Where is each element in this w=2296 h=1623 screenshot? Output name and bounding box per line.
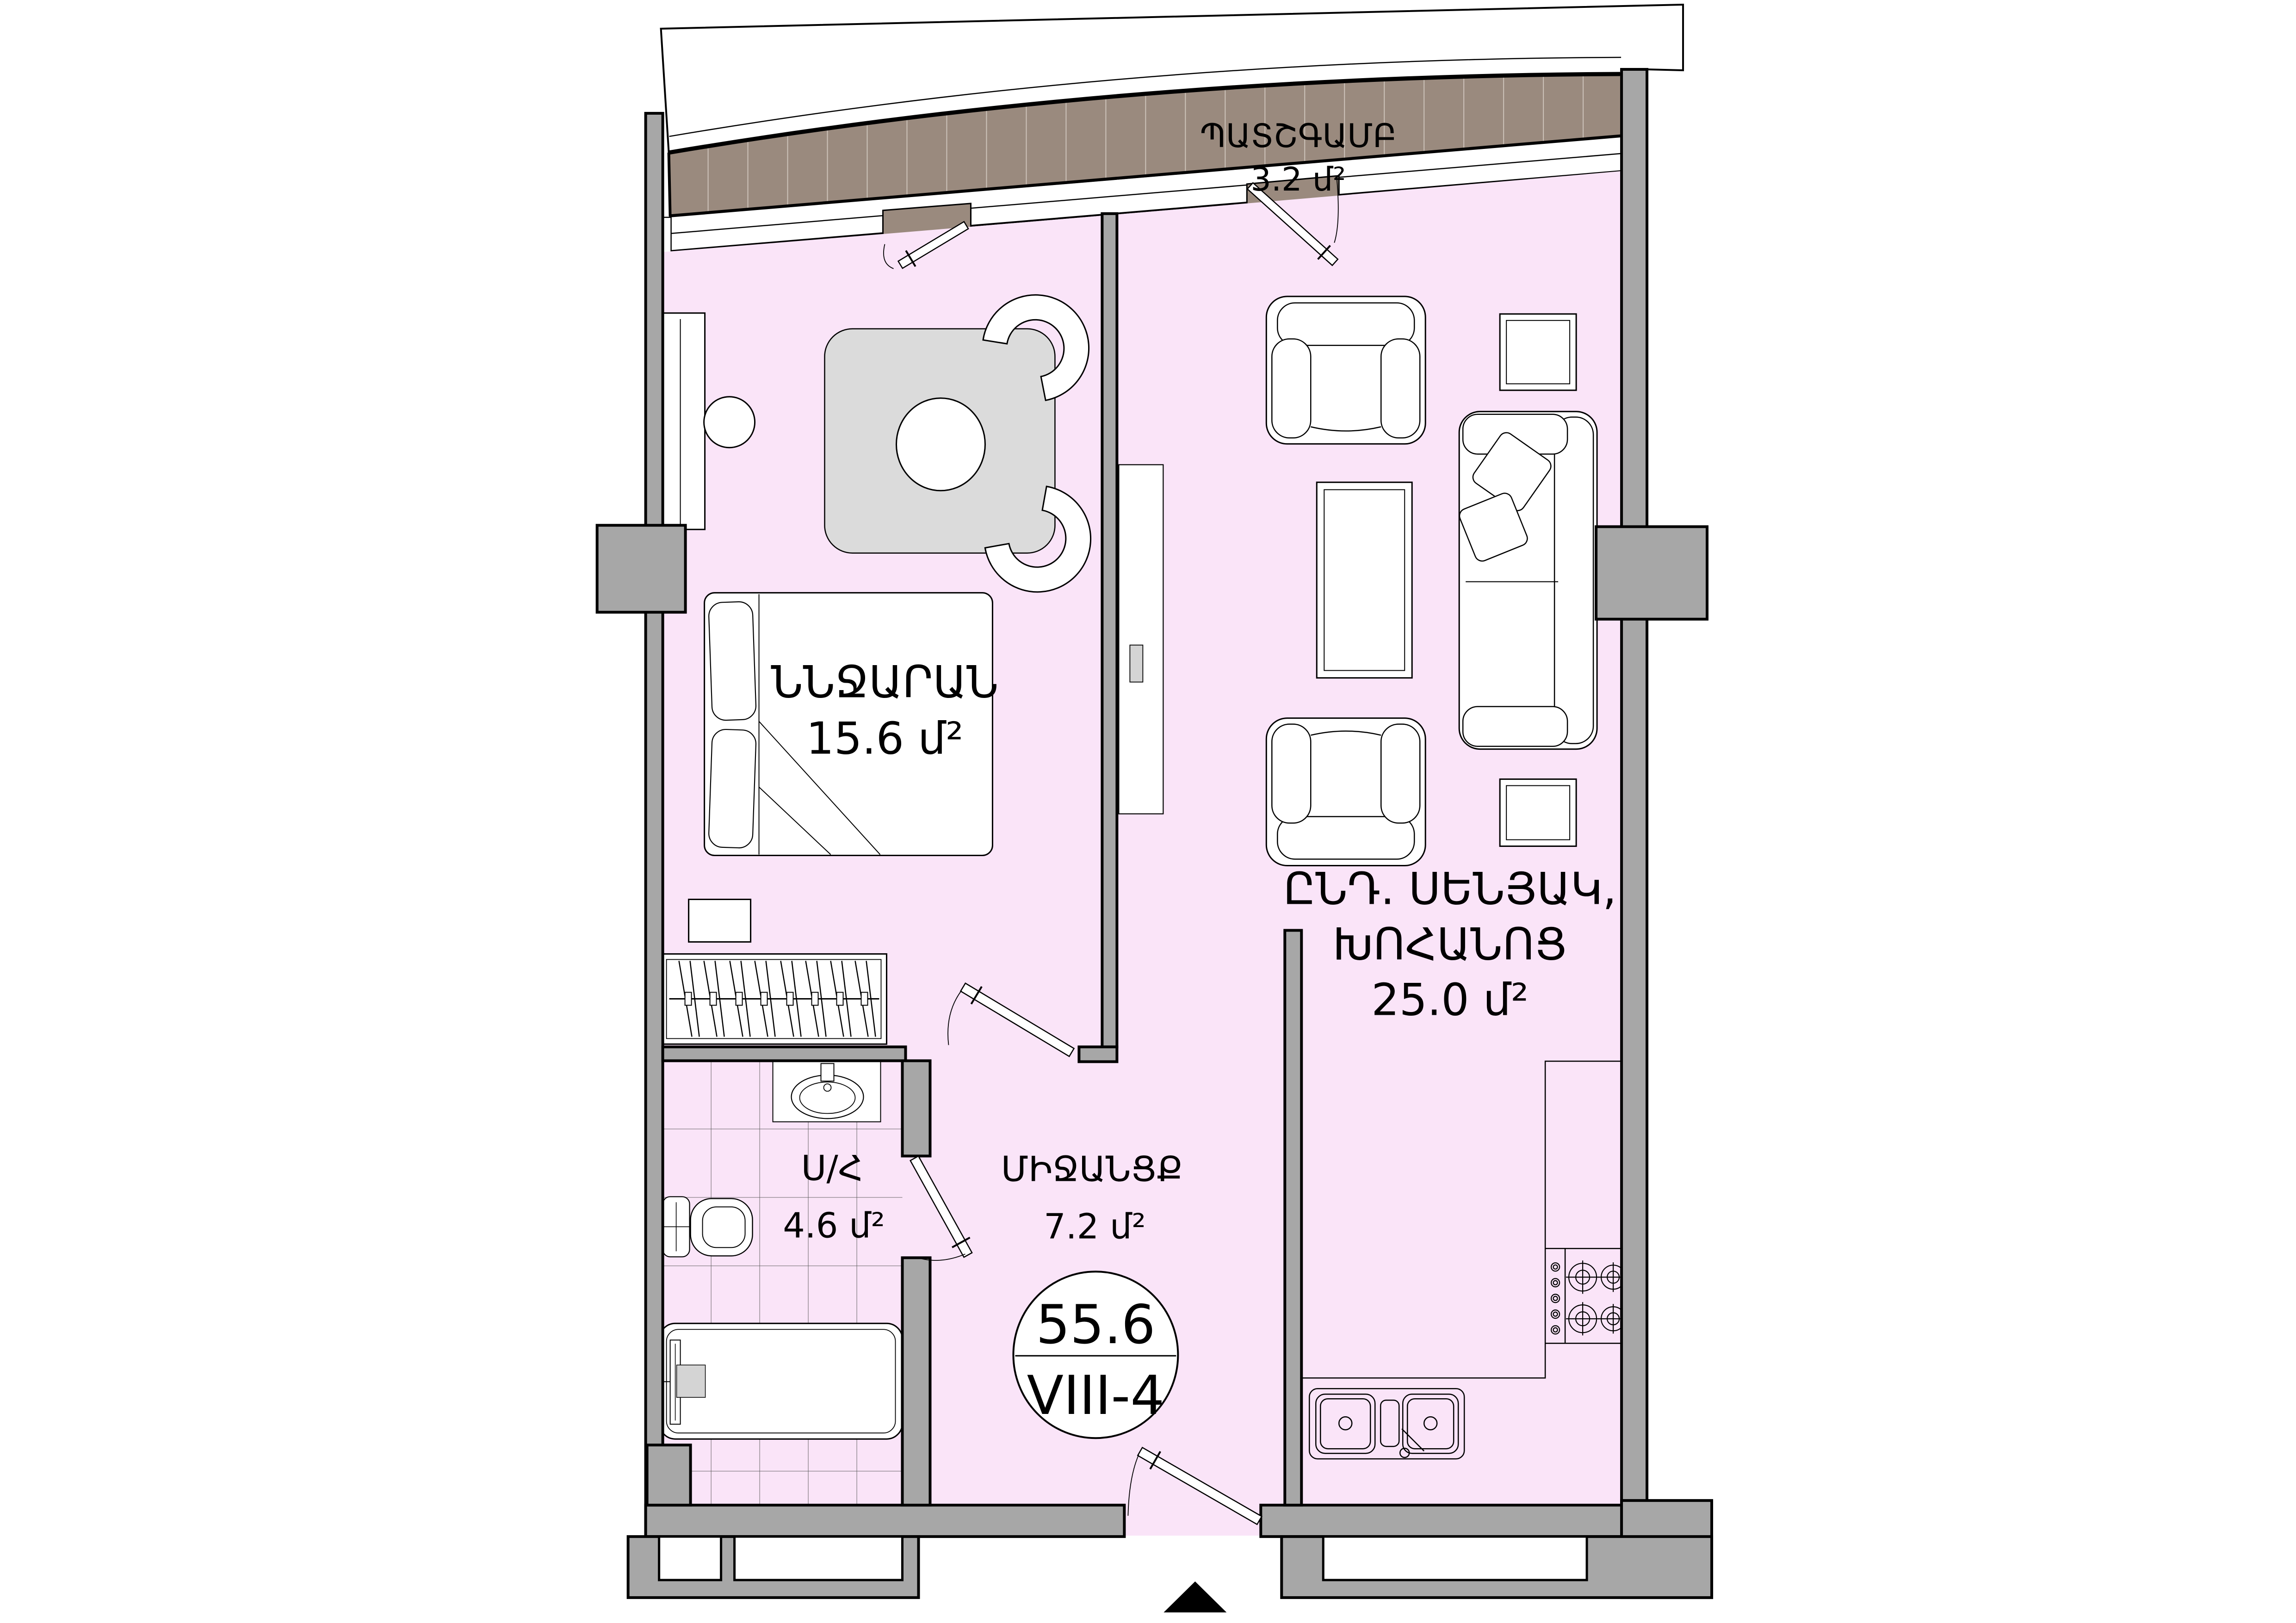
- bedroom-label: ՆՆՋԱՐԱՆ: [771, 657, 998, 708]
- entrance-arrow: [1163, 1582, 1226, 1613]
- wall-bottom-left: [645, 1506, 1124, 1537]
- wall-bathroom-right-lower: [902, 1258, 930, 1506]
- balcony-label: ՊԱՏՇԳԱՄԲ: [1200, 117, 1396, 155]
- wall-middle-stub: [1079, 1047, 1117, 1062]
- basement-windows: [659, 1537, 1586, 1580]
- window-bottom-2: [734, 1537, 902, 1580]
- side-table-bottom: [1500, 779, 1576, 846]
- hallway-label: ՄԻՋԱՆՑՔ: [1001, 1149, 1182, 1190]
- wardrobe: [659, 313, 705, 530]
- armchair-bottom: [1266, 718, 1425, 866]
- pillar-right: [1596, 527, 1707, 619]
- bathroom-label: Ս/Հ: [801, 1148, 863, 1189]
- pillow: [708, 729, 756, 848]
- living-area: 25.0 մ²: [1371, 975, 1529, 1026]
- page: 55.6 VIII-4 ՊԱՏՇԳԱՄԲ 3.2 մ² ՆՆՋԱՐԱՆ 15.6…: [0, 0, 2296, 1623]
- pillar-left: [597, 525, 685, 612]
- badge-apartment-code: VIII-4: [1027, 1365, 1164, 1427]
- washbasin: [773, 1061, 880, 1122]
- window-bottom-3: [1323, 1537, 1587, 1580]
- badge-total-area: 55.6: [1036, 1294, 1155, 1357]
- hallway-area: 7.2 մ²: [1044, 1206, 1146, 1247]
- wall-bottom-right: [1261, 1506, 1647, 1537]
- wall-bathroom-right-upper: [902, 1061, 930, 1156]
- toilet: [662, 1197, 752, 1257]
- stand: [704, 397, 755, 448]
- bathtub: [659, 1324, 902, 1439]
- tv: [1130, 645, 1143, 682]
- wall-right: [1621, 69, 1647, 1537]
- floor-plan-container: 55.6 VIII-4 ՊԱՏՇԳԱՄԲ 3.2 մ² ՆՆՋԱՐԱՆ 15.6…: [0, 0, 2296, 1623]
- wall-hall-living: [1285, 931, 1301, 1506]
- wall-step-bathroom: [647, 1445, 690, 1506]
- bedroom-area: 15.6 մ²: [806, 714, 963, 765]
- tv-console: [1119, 465, 1163, 814]
- balcony-area: 3.2 մ²: [1250, 160, 1346, 198]
- shower-tray: [676, 1365, 705, 1398]
- round-table: [896, 398, 985, 491]
- window-bottom-1: [659, 1537, 721, 1580]
- area-badge: 55.6 VIII-4: [1013, 1272, 1178, 1438]
- living-label-1: ԸՆԴ. ՍԵՆՅԱԿ,: [1283, 864, 1616, 915]
- nightstand: [688, 900, 750, 942]
- side-table-top: [1500, 314, 1576, 390]
- armchair-top: [1266, 296, 1425, 444]
- coffee-table: [1317, 482, 1412, 678]
- wall-bathroom-top: [662, 1047, 905, 1061]
- wall-middle: [1102, 214, 1117, 1047]
- bathroom-area: 4.6 մ²: [783, 1205, 885, 1246]
- wall-left: [645, 113, 662, 1537]
- closet: [661, 954, 886, 1044]
- living-label-2: ԽՈՀԱՆՈՑ: [1332, 919, 1567, 970]
- sofa: [1457, 412, 1597, 749]
- floor-plan: 55.6 VIII-4 ՊԱՏՇԳԱՄԲ 3.2 մ² ՆՆՋԱՐԱՆ 15.6…: [0, 0, 2296, 1623]
- pillow: [708, 602, 756, 721]
